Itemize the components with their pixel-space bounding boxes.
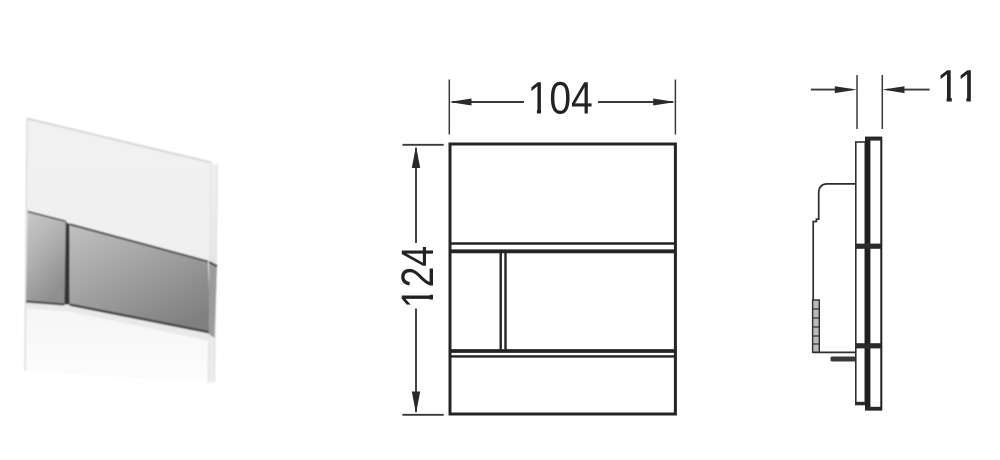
svg-text:11: 11 [937,62,980,112]
svg-text:104: 104 [528,73,593,123]
svg-text:124: 124 [393,246,443,308]
